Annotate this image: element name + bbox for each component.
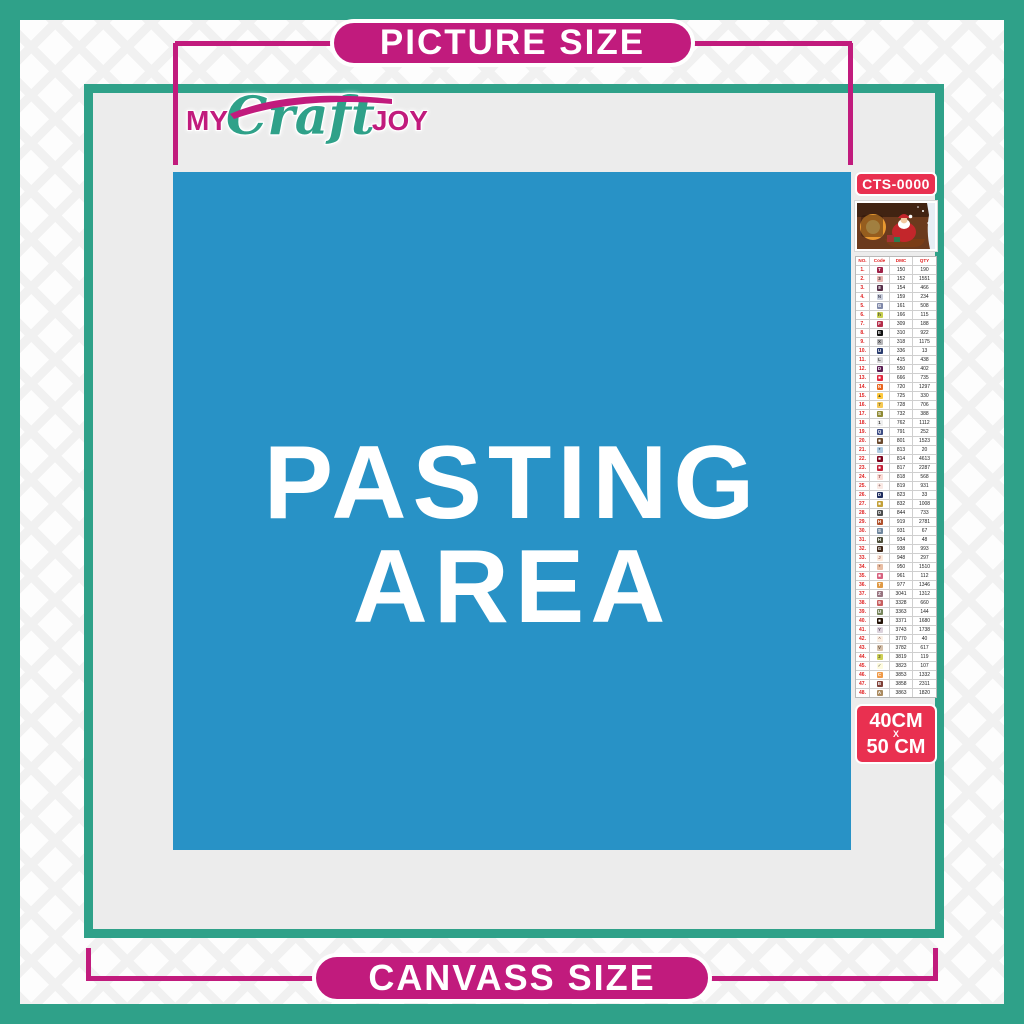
row-number: 23.: [856, 464, 870, 472]
qty-cell: 735: [913, 374, 936, 382]
dmc-cell: 791: [890, 428, 913, 436]
code-cell: S: [870, 527, 890, 535]
row-number: 40.: [856, 617, 870, 625]
code-cell: H: [870, 518, 890, 526]
code-cell: L: [870, 356, 890, 364]
table-row: 10.U33613: [856, 347, 936, 356]
row-number: 1.: [856, 266, 870, 274]
qty-cell: 13: [913, 347, 936, 355]
row-number: 48.: [856, 689, 870, 697]
color-chip: J: [877, 555, 883, 561]
dmc-cell: 3823: [890, 662, 913, 670]
qty-cell: 2287: [913, 464, 936, 472]
table-row: 23.■8172287: [856, 464, 936, 473]
dmc-cell: 3853: [890, 671, 913, 679]
qty-cell: 1297: [913, 383, 936, 391]
qty-cell: 993: [913, 545, 936, 553]
dmc-cell: 934: [890, 536, 913, 544]
row-number: 29.: [856, 518, 870, 526]
table-row: 44.23819119: [856, 653, 936, 662]
code-cell: 2: [870, 653, 890, 661]
color-chip: 8: [877, 285, 883, 291]
qty-cell: 252: [913, 428, 936, 436]
qty-cell: 617: [913, 644, 936, 652]
row-number: 13.: [856, 374, 870, 382]
dmc-cell: 977: [890, 581, 913, 589]
table-row: 16.7728706: [856, 401, 936, 410]
code-cell: 3: [870, 275, 890, 283]
color-chip: h: [877, 312, 883, 318]
row-number: 25.: [856, 482, 870, 490]
code-cell: ▲: [870, 392, 890, 400]
table-row: 28.O844733: [856, 509, 936, 518]
table-row: 34.*9501510: [856, 563, 936, 572]
row-number: 47.: [856, 680, 870, 688]
dmc-cell: 931: [890, 527, 913, 535]
color-chip: G: [877, 546, 883, 552]
code-cell: ■: [870, 464, 890, 472]
table-row: 20.■8011523: [856, 437, 936, 446]
color-chip: H: [877, 537, 883, 543]
row-number: 14.: [856, 383, 870, 391]
dmc-cell: 817: [890, 464, 913, 472]
code-cell: U: [870, 608, 890, 616]
code-cell: T: [870, 266, 890, 274]
qty-cell: 1312: [913, 590, 936, 598]
color-chip: ✓: [877, 663, 883, 669]
qty-cell: 508: [913, 302, 936, 310]
dmc-cell: 950: [890, 563, 913, 571]
row-number: 37.: [856, 590, 870, 598]
table-row: 39.U3363144: [856, 608, 936, 617]
code-cell: *: [870, 446, 890, 454]
table-row: 12.D550402: [856, 365, 936, 374]
table-row: 38.93328660: [856, 599, 936, 608]
code-cell: Z: [870, 590, 890, 598]
qty-cell: 1738: [913, 626, 936, 634]
dmc-cell: 310: [890, 329, 913, 337]
header-dmc: DMC: [890, 257, 913, 265]
canvass-size-banner: CANVASS SIZE: [312, 953, 712, 1003]
code-cell: ■: [870, 374, 890, 382]
color-chip: D: [877, 366, 883, 372]
table-row: 47.B38582311: [856, 680, 936, 689]
product-code: CTS-0000: [862, 176, 930, 192]
table-row: 35.■961112: [856, 572, 936, 581]
table-row: 18.17621112: [856, 419, 936, 428]
color-chip: E: [877, 330, 883, 336]
code-cell: ^: [870, 635, 890, 643]
code-cell: ■: [870, 617, 890, 625]
table-row: 45.✓3823107: [856, 662, 936, 671]
row-number: 43.: [856, 644, 870, 652]
qty-cell: 2311: [913, 680, 936, 688]
table-row: 42.^377040: [856, 635, 936, 644]
design-thumbnail: [855, 201, 937, 251]
color-chip: ■: [877, 618, 883, 624]
table-row: 9.X3181175: [856, 338, 936, 347]
code-cell: ■: [870, 500, 890, 508]
table-row: 19.Q791252: [856, 428, 936, 437]
color-chip: T: [877, 267, 883, 273]
row-number: 10.: [856, 347, 870, 355]
qty-cell: 438: [913, 356, 936, 364]
header-no: NO.: [856, 257, 870, 265]
code-cell: G: [870, 545, 890, 553]
color-chip: 3: [877, 276, 883, 282]
table-row: 15.▲725330: [856, 392, 936, 401]
qty-cell: 466: [913, 284, 936, 292]
dmc-cell: 3858: [890, 680, 913, 688]
code-cell: +: [870, 482, 890, 490]
row-number: 6.: [856, 311, 870, 319]
row-number: 28.: [856, 509, 870, 517]
dmc-cell: 818: [890, 473, 913, 481]
dmc-cell: 961: [890, 572, 913, 580]
color-chip: ■: [877, 438, 883, 444]
dmc-cell: 3371: [890, 617, 913, 625]
code-cell: N: [870, 293, 890, 301]
color-chip: F: [877, 321, 883, 327]
code-cell: D: [870, 491, 890, 499]
color-chip: *: [877, 564, 883, 570]
code-cell: ■: [870, 437, 890, 445]
pasting-area: PASTING AREA: [173, 172, 851, 850]
dmc-cell: 919: [890, 518, 913, 526]
qty-cell: 48: [913, 536, 936, 544]
code-cell: ■: [870, 572, 890, 580]
code-cell: U: [870, 347, 890, 355]
qty-cell: 388: [913, 410, 936, 418]
color-chip: *: [877, 447, 883, 453]
color-chip: C: [877, 672, 883, 678]
dmc-cell: 152: [890, 275, 913, 283]
product-sidebar: CTS-0000 NO. Code DMC QTY: [855, 172, 937, 764]
color-chip: ^: [877, 636, 883, 642]
table-row: 22.■8144613: [856, 455, 936, 464]
table-row: 13.■666735: [856, 374, 936, 383]
dmc-cell: 666: [890, 374, 913, 382]
row-number: 38.: [856, 599, 870, 607]
canvass-size-bracket-left: [86, 948, 91, 981]
table-row: 32.G938993: [856, 545, 936, 554]
color-chip: Z: [877, 591, 883, 597]
dmc-cell: 3819: [890, 653, 913, 661]
dmc-cell: 813: [890, 446, 913, 454]
picture-size-bracket-right: [848, 43, 853, 165]
color-chip: 1: [877, 420, 883, 426]
table-row: 27.■8321008: [856, 500, 936, 509]
color-chip: H: [877, 519, 883, 525]
code-cell: D: [870, 365, 890, 373]
qty-cell: 1551: [913, 275, 936, 283]
color-chip: L: [877, 357, 883, 363]
table-row: 14.N7201297: [856, 383, 936, 392]
color-chip: X: [877, 339, 883, 345]
row-number: 20.: [856, 437, 870, 445]
qty-cell: 33: [913, 491, 936, 499]
row-number: 42.: [856, 635, 870, 643]
row-number: 7.: [856, 320, 870, 328]
qty-cell: 1346: [913, 581, 936, 589]
qty-cell: 234: [913, 293, 936, 301]
qty-cell: 190: [913, 266, 936, 274]
dmc-cell: 938: [890, 545, 913, 553]
color-chip: ■: [877, 375, 883, 381]
row-number: 31.: [856, 536, 870, 544]
code-cell: 9: [870, 599, 890, 607]
picture-size-banner: PICTURE SIZE: [330, 19, 695, 67]
canvas-size-badge: 40CM X 50 CM: [855, 704, 937, 764]
color-chip: 7: [877, 402, 883, 408]
color-chip: U: [877, 348, 883, 354]
qty-cell: 1820: [913, 689, 936, 697]
code-cell: 8: [870, 284, 890, 292]
row-number: 26.: [856, 491, 870, 499]
qty-cell: 1008: [913, 500, 936, 508]
color-chip: +: [877, 483, 883, 489]
table-row: 36.T9771346: [856, 581, 936, 590]
row-number: 39.: [856, 608, 870, 616]
table-row: 4.N159234: [856, 293, 936, 302]
row-number: 21.: [856, 446, 870, 454]
table-row: 37.Z30411312: [856, 590, 936, 599]
qty-cell: 402: [913, 365, 936, 373]
qty-cell: 330: [913, 392, 936, 400]
dmc-cell: 159: [890, 293, 913, 301]
code-cell: C: [870, 671, 890, 679]
row-number: 12.: [856, 365, 870, 373]
picture-size-line-right: [693, 41, 852, 46]
qty-cell: 1175: [913, 338, 936, 346]
row-number: 36.: [856, 581, 870, 589]
table-row: 48.A38631820: [856, 689, 936, 697]
color-chip: D: [877, 492, 883, 498]
picture-size-label: PICTURE SIZE: [380, 23, 645, 63]
color-chip: N: [877, 384, 883, 390]
code-cell: E: [870, 329, 890, 337]
code-cell: O: [870, 509, 890, 517]
dmc-cell: 166: [890, 311, 913, 319]
product-infographic: { "banners": { "top": "PICTURE SIZE", "b…: [0, 0, 1024, 1024]
row-number: 18.: [856, 419, 870, 427]
qty-cell: 40: [913, 635, 936, 643]
dmc-cell: 832: [890, 500, 913, 508]
row-number: 30.: [856, 527, 870, 535]
dmc-cell: 844: [890, 509, 913, 517]
dmc-cell: 801: [890, 437, 913, 445]
qty-cell: 144: [913, 608, 936, 616]
color-chip: ■: [877, 501, 883, 507]
row-number: 41.: [856, 626, 870, 634]
dmc-cell: 154: [890, 284, 913, 292]
table-row: 29.H9192781: [856, 518, 936, 527]
table-body: 1.T1501902.315215513.81544664.N1592345.G…: [856, 266, 936, 697]
table-row: 21.*81320: [856, 446, 936, 455]
qty-cell: 67: [913, 527, 936, 535]
table-row: 6.h166115: [856, 311, 936, 320]
dmc-cell: 948: [890, 554, 913, 562]
color-chip: ■: [877, 465, 883, 471]
color-chip: O: [877, 510, 883, 516]
table-row: 40.■33711680: [856, 617, 936, 626]
pasting-area-label-line2: AREA: [353, 535, 672, 639]
qty-cell: 1112: [913, 419, 936, 427]
picture-size-line-left: [175, 41, 332, 46]
santa-scene-image: [857, 203, 935, 249]
qty-cell: 660: [913, 599, 936, 607]
table-row: 7.F309188: [856, 320, 936, 329]
table-row: 3.8154466: [856, 284, 936, 293]
dmc-color-table: NO. Code DMC QTY 1.T1501902.315215513.81…: [855, 256, 937, 698]
color-chip: ▲: [877, 393, 883, 399]
code-cell: H: [870, 536, 890, 544]
code-cell: J: [870, 554, 890, 562]
code-cell: ✓: [870, 662, 890, 670]
code-cell: *: [870, 563, 890, 571]
code-cell: B: [870, 680, 890, 688]
table-row: 24.7818568: [856, 473, 936, 482]
dmc-cell: 819: [890, 482, 913, 490]
row-number: 46.: [856, 671, 870, 679]
code-cell: h: [870, 311, 890, 319]
color-chip: 2: [877, 654, 883, 660]
dmc-cell: 732: [890, 410, 913, 418]
qty-cell: 4613: [913, 455, 936, 463]
canvass-size-line-right: [710, 976, 938, 981]
canvass-size-label: CANVASS SIZE: [368, 957, 655, 999]
color-chip: G: [877, 303, 883, 309]
color-chip: S: [877, 528, 883, 534]
qty-cell: 188: [913, 320, 936, 328]
row-number: 16.: [856, 401, 870, 409]
table-row: 2.31521551: [856, 275, 936, 284]
dmc-cell: 720: [890, 383, 913, 391]
row-number: 34.: [856, 563, 870, 571]
qty-cell: 297: [913, 554, 936, 562]
header-code: Code: [870, 257, 890, 265]
code-cell: 7: [870, 401, 890, 409]
qty-cell: 2781: [913, 518, 936, 526]
table-row: 8.E310922: [856, 329, 936, 338]
dmc-cell: 3363: [890, 608, 913, 616]
logo-word-my: MY: [186, 107, 228, 141]
dmc-cell: 161: [890, 302, 913, 310]
code-cell: V: [870, 644, 890, 652]
dmc-cell: 725: [890, 392, 913, 400]
code-cell: N: [870, 383, 890, 391]
table-row: 30.S93167: [856, 527, 936, 536]
color-chip: ■: [877, 456, 883, 462]
canvass-size-line-left: [88, 976, 314, 981]
row-number: 19.: [856, 428, 870, 436]
code-cell: 7: [870, 473, 890, 481]
row-number: 2.: [856, 275, 870, 283]
dmc-cell: 150: [890, 266, 913, 274]
row-number: 15.: [856, 392, 870, 400]
table-row: 1.T150190: [856, 266, 936, 275]
qty-cell: 112: [913, 572, 936, 580]
qty-cell: 20: [913, 446, 936, 454]
size-width: 40CM: [869, 712, 922, 730]
row-number: 44.: [856, 653, 870, 661]
qty-cell: 1332: [913, 671, 936, 679]
qty-cell: 107: [913, 662, 936, 670]
table-row: 46.C38531332: [856, 671, 936, 680]
code-cell: Y: [870, 626, 890, 634]
dmc-cell: 823: [890, 491, 913, 499]
row-number: 22.: [856, 455, 870, 463]
code-cell: G: [870, 302, 890, 310]
canvass-size-bracket-right: [933, 948, 938, 981]
dmc-cell: 336: [890, 347, 913, 355]
dmc-cell: 318: [890, 338, 913, 346]
table-row: 43.V3782617: [856, 644, 936, 653]
table-row: 25.+819931: [856, 482, 936, 491]
table-row: 41.Y37431738: [856, 626, 936, 635]
code-cell: F: [870, 320, 890, 328]
color-chip: S: [877, 411, 883, 417]
row-number: 4.: [856, 293, 870, 301]
row-number: 32.: [856, 545, 870, 553]
code-cell: S: [870, 410, 890, 418]
dmc-cell: 3782: [890, 644, 913, 652]
color-chip: B: [877, 681, 883, 687]
row-number: 9.: [856, 338, 870, 346]
table-row: 5.G161508: [856, 302, 936, 311]
row-number: 33.: [856, 554, 870, 562]
mycraftjoy-logo: MY Craft JOY: [186, 94, 428, 141]
dmc-cell: 814: [890, 455, 913, 463]
table-row: 26.D82333: [856, 491, 936, 500]
qty-cell: 1510: [913, 563, 936, 571]
dmc-cell: 3743: [890, 626, 913, 634]
code-cell: Q: [870, 428, 890, 436]
table-header-row: NO. Code DMC QTY: [856, 257, 936, 266]
logo-swoosh-icon: [228, 90, 396, 124]
dmc-cell: 3041: [890, 590, 913, 598]
code-cell: A: [870, 689, 890, 697]
color-chip: Q: [877, 429, 883, 435]
row-number: 5.: [856, 302, 870, 310]
row-number: 17.: [856, 410, 870, 418]
dmc-cell: 3770: [890, 635, 913, 643]
row-number: 8.: [856, 329, 870, 337]
qty-cell: 733: [913, 509, 936, 517]
color-chip: ■: [877, 573, 883, 579]
dmc-cell: 762: [890, 419, 913, 427]
row-number: 3.: [856, 284, 870, 292]
pasting-area-label-line1: PASTING: [264, 431, 761, 535]
table-row: 33.J948297: [856, 554, 936, 563]
dmc-cell: 415: [890, 356, 913, 364]
picture-size-bracket-left: [173, 43, 178, 165]
dmc-cell: 3863: [890, 689, 913, 697]
qty-cell: 706: [913, 401, 936, 409]
product-code-badge: CTS-0000: [855, 172, 937, 196]
code-cell: 1: [870, 419, 890, 427]
table-row: 17.S732388: [856, 410, 936, 419]
dmc-cell: 3328: [890, 599, 913, 607]
qty-cell: 1680: [913, 617, 936, 625]
row-number: 35.: [856, 572, 870, 580]
code-cell: X: [870, 338, 890, 346]
row-number: 27.: [856, 500, 870, 508]
dmc-cell: 728: [890, 401, 913, 409]
color-chip: 9: [877, 600, 883, 606]
qty-cell: 119: [913, 653, 936, 661]
size-height: 50 CM: [867, 738, 926, 756]
